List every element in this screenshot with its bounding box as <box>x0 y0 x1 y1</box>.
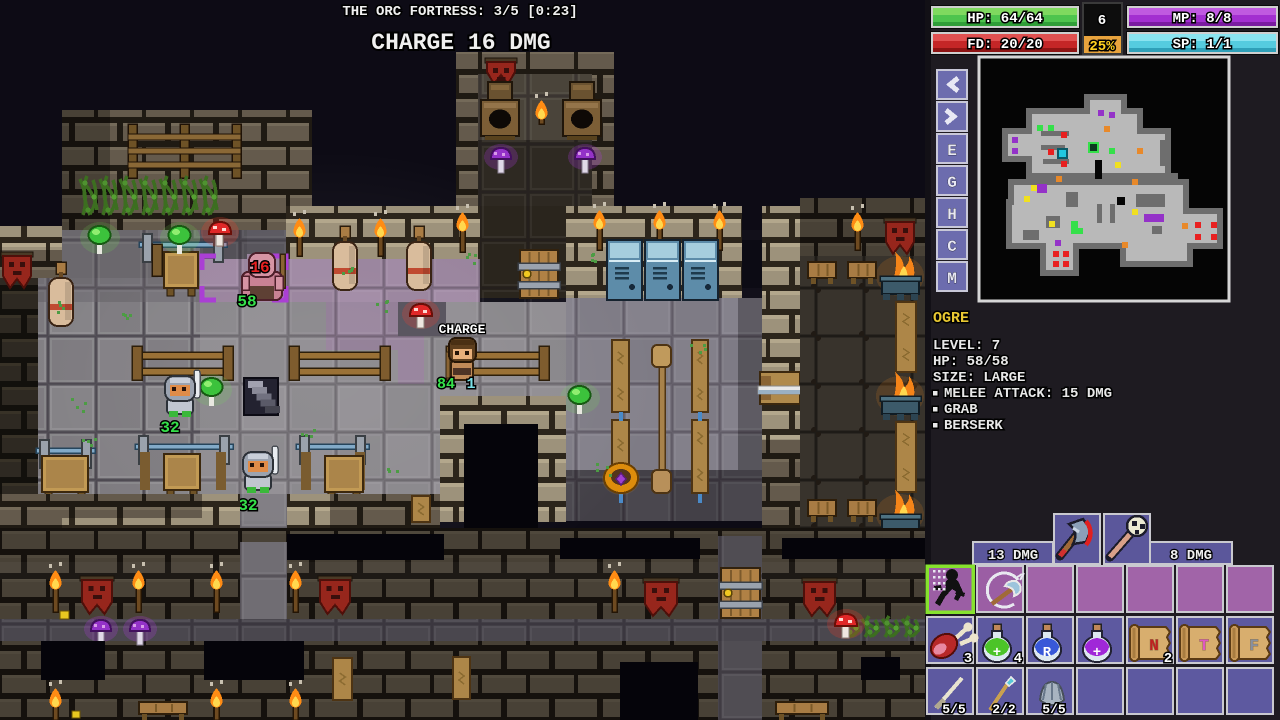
svg-text:4: 4 <box>1014 651 1022 667</box>
svg-text:5/5: 5/5 <box>1042 702 1066 717</box>
svg-text:32: 32 <box>238 497 257 515</box>
svg-text:OGRE: OGRE <box>933 310 969 327</box>
svg-text:GRAB: GRAB <box>944 402 978 418</box>
svg-text:MELEE ATTACK: 15 DMG: MELEE ATTACK: 15 DMG <box>944 386 1112 402</box>
svg-text:2: 2 <box>1164 651 1172 667</box>
svg-text:SIZE: LARGE: SIZE: LARGE <box>933 370 1025 386</box>
svg-text:3: 3 <box>964 651 972 667</box>
svg-text:58: 58 <box>237 293 256 311</box>
svg-text:H: H <box>947 206 957 224</box>
svg-text:N: N <box>1149 637 1159 655</box>
svg-text:M: M <box>947 270 957 288</box>
svg-text:5/5: 5/5 <box>942 702 966 717</box>
svg-text:+: + <box>1093 645 1101 661</box>
svg-text:2/2: 2/2 <box>992 702 1016 717</box>
svg-text:BERSERK: BERSERK <box>944 418 1003 434</box>
svg-text:25%: 25% <box>1089 39 1115 55</box>
svg-text:16: 16 <box>250 259 269 277</box>
svg-text:SP: 1/1: SP: 1/1 <box>1173 37 1232 53</box>
svg-text:CHARGE 16 DMG: CHARGE 16 DMG <box>371 30 550 56</box>
svg-text:CHARGE: CHARGE <box>439 322 486 337</box>
svg-text:LEVEL: 7: LEVEL: 7 <box>933 338 1000 354</box>
svg-text:E: E <box>947 142 957 160</box>
svg-text:G: G <box>947 174 957 192</box>
svg-text:13 DMG: 13 DMG <box>988 548 1038 564</box>
svg-text:84: 84 <box>437 376 455 393</box>
svg-text:8 DMG: 8 DMG <box>1170 548 1212 564</box>
svg-text:R: R <box>1043 645 1052 661</box>
svg-text:T: T <box>1199 637 1209 655</box>
svg-text:32: 32 <box>160 419 179 437</box>
svg-text:+: + <box>993 645 1001 661</box>
svg-text:THE ORC FORTRESS: 3/5 [0:23]: THE ORC FORTRESS: 3/5 [0:23] <box>342 4 577 20</box>
svg-text:C: C <box>947 238 957 256</box>
svg-text:1: 1 <box>466 376 475 393</box>
svg-text:MP: 8/8: MP: 8/8 <box>1173 11 1232 27</box>
svg-text:HP: 58/58: HP: 58/58 <box>933 354 1009 370</box>
svg-text:HP: 64/64: HP: 64/64 <box>967 11 1043 27</box>
svg-text:F: F <box>1249 637 1259 655</box>
svg-text:FD: 20/20: FD: 20/20 <box>967 37 1043 53</box>
svg-text:6: 6 <box>1098 13 1106 29</box>
